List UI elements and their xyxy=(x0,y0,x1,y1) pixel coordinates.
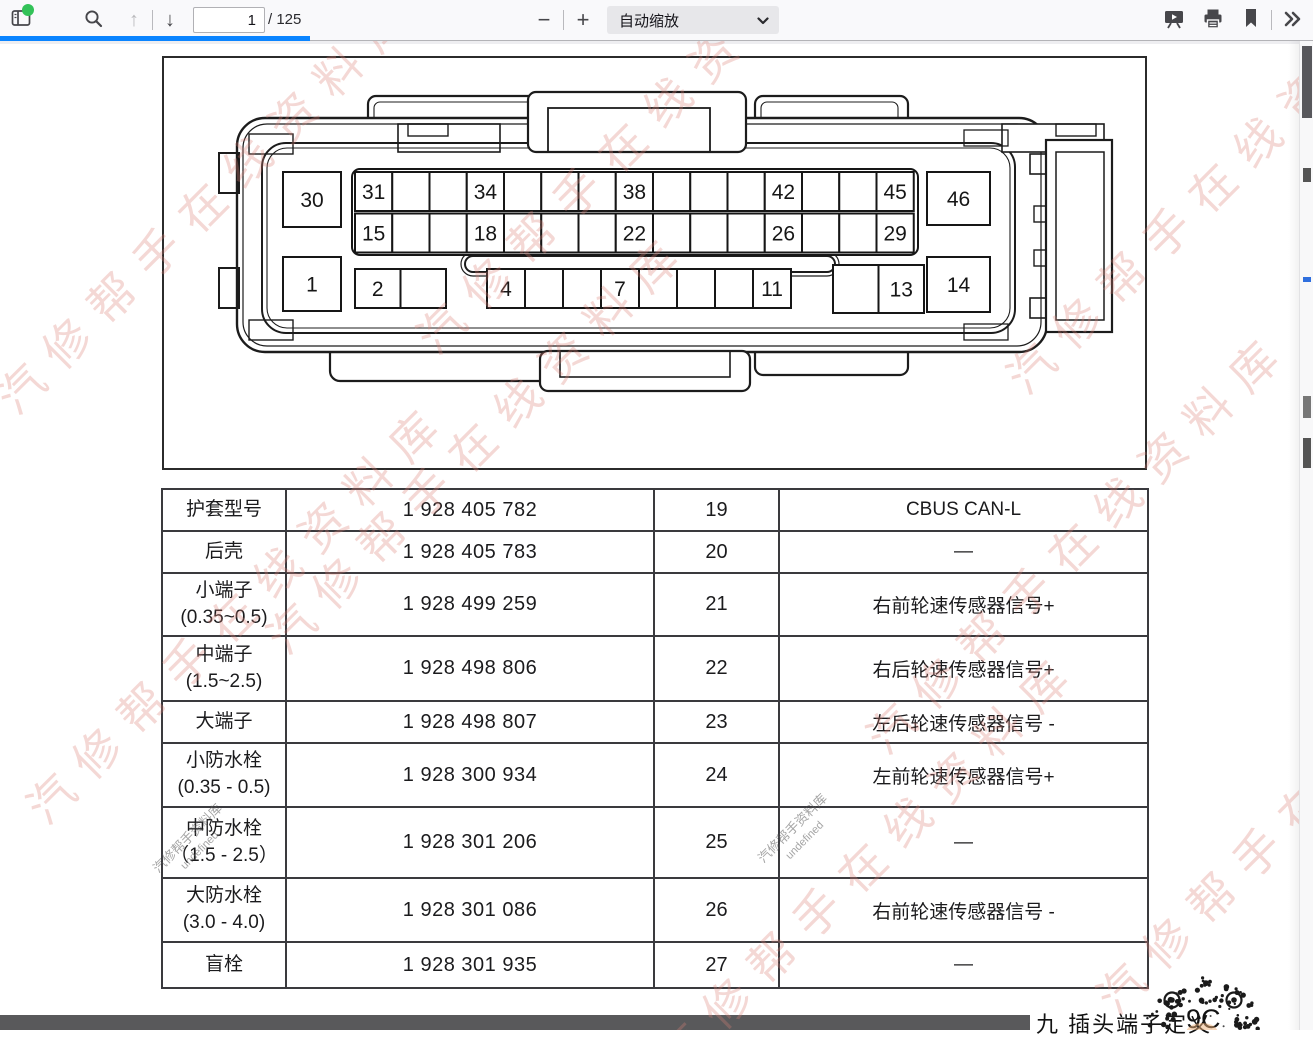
pin-label: 2 xyxy=(372,278,384,301)
pin-cell xyxy=(690,214,727,253)
double-chevron-right-icon xyxy=(1283,10,1303,31)
bookmark-icon xyxy=(1242,8,1260,33)
pin-label: 29 xyxy=(883,223,906,246)
part-type-cell: 小防水栓(0.35 - 0.5) xyxy=(162,743,286,807)
pin-label: 1 xyxy=(306,274,318,297)
zoom-in-button[interactable]: + xyxy=(571,8,595,32)
print-icon xyxy=(1202,8,1224,33)
scrollbar-thumb[interactable] xyxy=(1302,46,1312,118)
presentation-icon xyxy=(1163,8,1185,33)
connector-figure: 3134384245151822262924711133014614 xyxy=(162,56,1147,470)
pin-cell xyxy=(579,172,616,211)
table-row: 盲栓1 928 301 93527— xyxy=(162,942,1148,988)
part-type-cell: 大防水栓(3.0 - 4.0) xyxy=(162,878,286,942)
pin-cell xyxy=(563,269,601,308)
current-view-button[interactable] xyxy=(1238,7,1264,33)
pin-cell xyxy=(653,214,690,253)
pin-number-cell: 25 xyxy=(654,807,779,878)
pin-cell xyxy=(639,269,677,308)
table-row: 大防水栓(3.0 - 4.0)1 928 301 08626右前轮速传感器信号 … xyxy=(162,878,1148,942)
part-number-cell: 1 928 499 259 xyxy=(286,573,654,636)
part-number-cell: 1 928 405 783 xyxy=(286,531,654,573)
pin-number-cell: 22 xyxy=(654,636,779,701)
pin-cell xyxy=(839,172,876,211)
part-number-cell: 1 928 301 935 xyxy=(286,942,654,988)
table-row: 中端子(1.5~2.5)1 928 498 80622右后轮速传感器信号+ xyxy=(162,636,1148,701)
pin-function-cell: 右前轮速传感器信号+ xyxy=(779,573,1148,636)
zoom-select[interactable]: 自动缩放 xyxy=(607,6,779,34)
plus-icon: + xyxy=(577,9,590,31)
pin-number-cell: 27 xyxy=(654,942,779,988)
part-type-cell: 护套型号 xyxy=(162,489,286,531)
pin-cell xyxy=(579,214,616,253)
pin-cell xyxy=(401,269,447,308)
notification-dot xyxy=(22,4,34,16)
pin-label: 11 xyxy=(761,278,783,301)
part-number-cell: 1 928 301 206 xyxy=(286,807,654,878)
pin-label: 34 xyxy=(474,181,498,204)
pin-number-cell: 24 xyxy=(654,743,779,807)
part-number-cell: 1 928 498 806 xyxy=(286,636,654,701)
minus-icon: − xyxy=(538,9,551,31)
pin-label: 4 xyxy=(500,278,512,301)
pin-cell xyxy=(728,214,765,253)
pin-function-cell: — xyxy=(779,807,1148,878)
arrow-up-icon: ↑ xyxy=(129,10,139,30)
pin-label: 22 xyxy=(623,223,646,246)
pin-cell xyxy=(839,214,876,253)
pin-label: 45 xyxy=(883,181,906,204)
print-button[interactable] xyxy=(1200,7,1226,33)
pin-cell xyxy=(677,269,715,308)
pin-table: 护套型号1 928 405 78219CBUS CAN-L后壳1 928 405… xyxy=(161,488,1149,989)
pin-number-cell: 23 xyxy=(654,701,779,743)
pin-label: 14 xyxy=(947,274,971,297)
pin-number-cell: 21 xyxy=(654,573,779,636)
pin-cell xyxy=(392,172,429,211)
table-row: 大端子1 928 498 80723左后轮速传感器信号 - xyxy=(162,701,1148,743)
pin-cell xyxy=(541,172,578,211)
pin-cell xyxy=(690,172,727,211)
zoom-select-value: 自动缩放 xyxy=(619,10,679,31)
pin-cell xyxy=(653,172,690,211)
pin-cell xyxy=(430,214,467,253)
vertical-scrollbar[interactable] xyxy=(1299,41,1313,1030)
pin-cell xyxy=(504,172,541,211)
pin-function-cell: 右后轮速传感器信号+ xyxy=(779,636,1148,701)
pin-function-cell: 左后轮速传感器信号 - xyxy=(779,701,1148,743)
scrollbar-mark xyxy=(1303,168,1311,182)
pin-label: 42 xyxy=(772,181,795,204)
part-number-cell: 1 928 300 934 xyxy=(286,743,654,807)
zoom-out-button[interactable]: − xyxy=(532,8,556,32)
pin-number-cell: 19 xyxy=(654,489,779,531)
part-type-cell: 小端子(0.35~0.5) xyxy=(162,573,286,636)
pin-function-cell: — xyxy=(779,531,1148,573)
more-tools-button[interactable] xyxy=(1280,7,1306,33)
arrow-down-icon: ↓ xyxy=(165,10,175,30)
part-number-cell: 1 928 498 807 xyxy=(286,701,654,743)
pdf-toolbar: ↑ ↓ / 125 − + 自动缩放 xyxy=(0,0,1313,41)
pin-label: 31 xyxy=(362,181,385,204)
toolbar-divider xyxy=(563,10,564,30)
next-page-button[interactable]: ↓ xyxy=(158,8,182,32)
pin-label: 38 xyxy=(623,181,646,204)
table-row: 后壳1 928 405 78320— xyxy=(162,531,1148,573)
table-row: 护套型号1 928 405 78219CBUS CAN-L xyxy=(162,489,1148,531)
pin-cell xyxy=(541,214,578,253)
part-type-cell: 中端子(1.5~2.5) xyxy=(162,636,286,701)
scrollbar-mark xyxy=(1303,438,1311,468)
pin-cell xyxy=(802,214,839,253)
toolbar-divider xyxy=(152,10,153,30)
pin-label: 7 xyxy=(614,278,626,301)
table-row: 小防水栓(0.35 - 0.5)1 928 300 93424左前轮速传感器信号… xyxy=(162,743,1148,807)
find-button[interactable] xyxy=(82,8,106,32)
pin-cell xyxy=(802,172,839,211)
pin-function-cell: — xyxy=(779,942,1148,988)
presentation-mode-button[interactable] xyxy=(1161,7,1187,33)
pin-label: 13 xyxy=(890,279,913,302)
pin-function-cell: CBUS CAN-L xyxy=(779,489,1148,531)
scrollbar-mark xyxy=(1303,396,1311,418)
table-row: 中防水栓（1.5 - 2.5）1 928 301 20625— xyxy=(162,807,1148,878)
toolbar-under-strip xyxy=(0,41,1313,44)
search-icon xyxy=(84,9,104,32)
page-number-input[interactable] xyxy=(193,7,265,33)
pin-cell xyxy=(430,172,467,211)
toolbar-divider xyxy=(1271,10,1272,30)
part-type-cell: 盲栓 xyxy=(162,942,286,988)
part-number-cell: 1 928 405 782 xyxy=(286,489,654,531)
footer-dark-bar xyxy=(0,1015,1030,1030)
pin-number-cell: 20 xyxy=(654,531,779,573)
part-type-cell: 大端子 xyxy=(162,701,286,743)
pin-cell xyxy=(525,269,563,308)
connector-diagram: 3134384245151822262924711133014614 xyxy=(164,58,1145,468)
pin-label: 26 xyxy=(772,223,795,246)
chevron-down-icon xyxy=(757,12,769,29)
part-type-cell: 中防水栓（1.5 - 2.5） xyxy=(162,807,286,878)
pin-cell xyxy=(504,214,541,253)
pin-label: 46 xyxy=(947,188,970,211)
pin-cell xyxy=(392,214,429,253)
qr-code-stamp xyxy=(1140,975,1290,1030)
pin-cell xyxy=(728,172,765,211)
part-number-cell: 1 928 301 086 xyxy=(286,878,654,942)
scrollbar-mark xyxy=(1303,277,1311,282)
pin-label: 15 xyxy=(362,223,385,246)
loading-progress-bar xyxy=(0,36,310,41)
pin-cell xyxy=(715,269,753,308)
pin-cell xyxy=(833,265,879,313)
page-count-label: / 125 xyxy=(268,11,301,28)
pin-number-cell: 26 xyxy=(654,878,779,942)
pin-function-cell: 右前轮速传感器信号 - xyxy=(779,878,1148,942)
pin-function-cell: 左前轮速传感器信号+ xyxy=(779,743,1148,807)
table-row: 小端子(0.35~0.5)1 928 499 25921右前轮速传感器信号+ xyxy=(162,573,1148,636)
pin-label: 18 xyxy=(474,223,497,246)
pin-label: 30 xyxy=(300,189,323,212)
previous-page-button[interactable]: ↑ xyxy=(122,8,146,32)
part-type-cell: 后壳 xyxy=(162,531,286,573)
